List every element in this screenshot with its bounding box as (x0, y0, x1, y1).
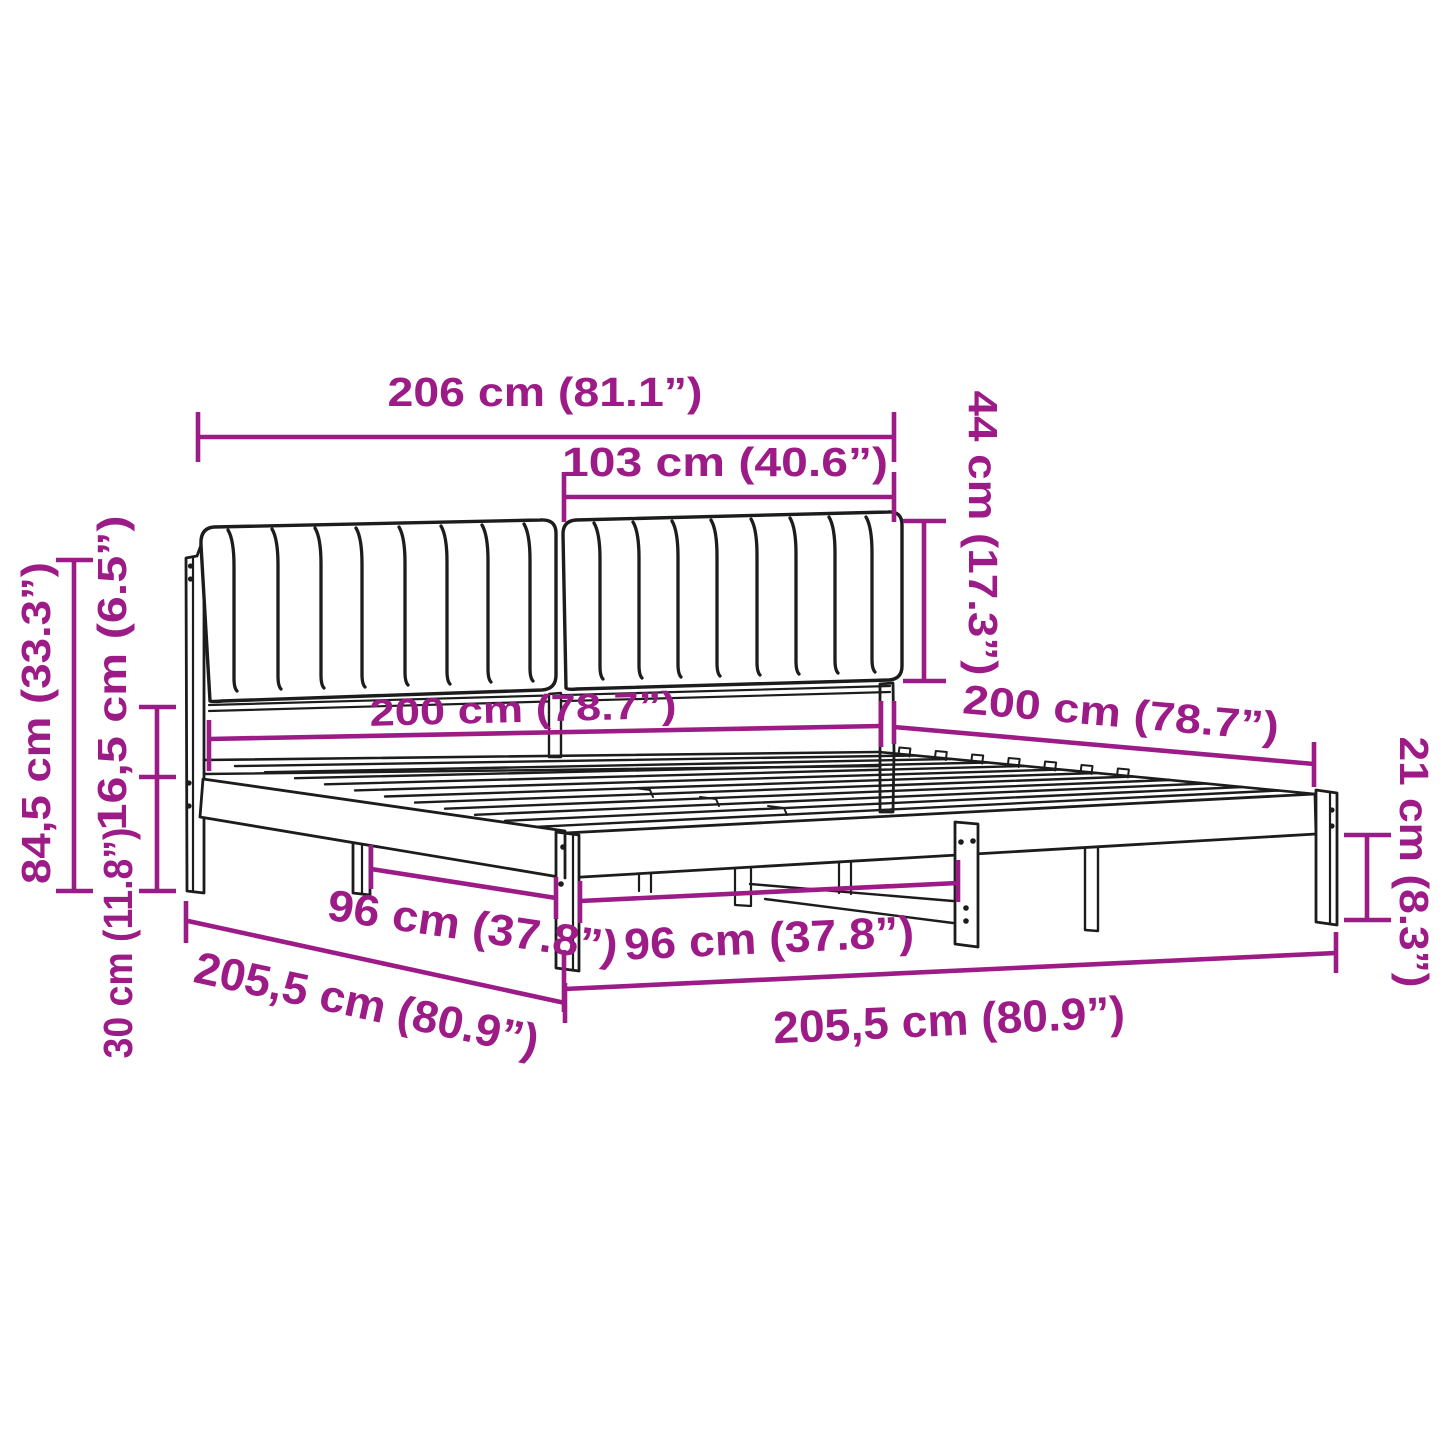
svg-text:21 cm (8.3”): 21 cm (8.3”) (1391, 737, 1437, 988)
svg-text:44 cm (17.3”): 44 cm (17.3”) (960, 391, 1006, 676)
svg-text:84,5 cm (33.3”): 84,5 cm (33.3”) (13, 562, 59, 884)
svg-text:30 cm (11.8”): 30 cm (11.8”) (95, 828, 141, 1059)
svg-text:103 cm (40.6”): 103 cm (40.6”) (562, 439, 888, 485)
svg-text:206 cm (81.1”): 206 cm (81.1”) (388, 369, 703, 415)
svg-text:16,5 cm (6.5”): 16,5 cm (6.5”) (89, 516, 135, 831)
svg-text:200 cm (78.7”): 200 cm (78.7”) (369, 685, 677, 735)
